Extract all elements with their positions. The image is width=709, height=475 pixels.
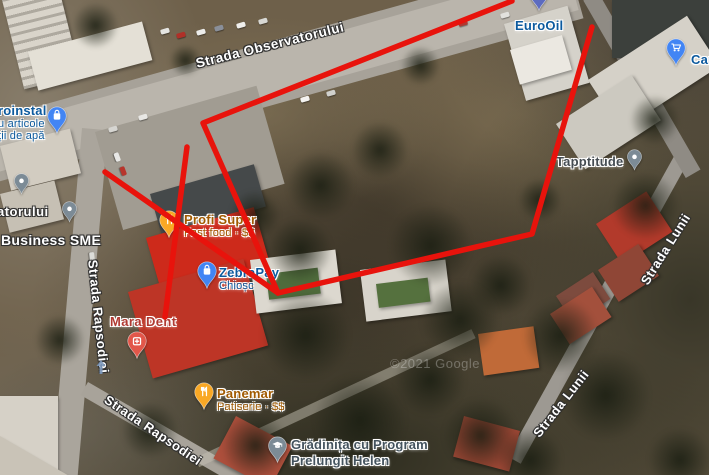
dot-icon (67, 207, 72, 212)
vehicle (160, 28, 170, 35)
profi-super-subtitle: Fast food · $$ (184, 227, 256, 239)
one-way-arrow-icon (96, 360, 106, 374)
vehicle (326, 90, 336, 97)
dot-icon (632, 155, 637, 160)
tree-canopy (380, 330, 480, 430)
tree-canopy (510, 170, 570, 230)
building (478, 326, 539, 375)
tree-canopy (273, 138, 368, 233)
vehicle (196, 29, 206, 36)
zebrapay-subtitle: Chioșc (219, 280, 279, 292)
mara-dent-label[interactable]: Mara Dent (110, 314, 176, 329)
pin-carrefour[interactable] (665, 38, 687, 68)
tree-canopy (340, 110, 420, 190)
profi-super-label[interactable]: Profi Super Fast food · $$ (184, 212, 256, 239)
building (453, 416, 520, 472)
gradinita-label[interactable]: Grădinița cu Program Prelungit Helen (291, 437, 428, 469)
euroil-label[interactable]: EuroOil (515, 18, 563, 33)
street-label-observatorului-partial: atorului (0, 204, 49, 219)
pin-hidroinstal[interactable] (46, 106, 68, 136)
vehicle (214, 25, 224, 32)
pin-gradinita[interactable] (267, 436, 288, 465)
tree-canopy (635, 415, 709, 475)
zebrapay-name: ZebraPay (219, 265, 279, 280)
hidroinstal-label-line3: ții de apă (0, 130, 47, 142)
map-canvas[interactable]: Strada Observatorului Strada Rapsodiei S… (0, 0, 709, 475)
panemar-label[interactable]: Panemar Patiserie · $$ (217, 386, 285, 413)
tapptitude-label[interactable]: Tapptitude (556, 154, 623, 169)
watermark: ©2021 Google (390, 356, 480, 371)
pin-unnamed-gray[interactable] (13, 173, 30, 196)
carrefour-label-truncated[interactable]: Car (691, 52, 709, 67)
profi-super-name: Profi Super (184, 212, 256, 227)
vehicle (176, 32, 186, 39)
vehicle (300, 96, 310, 103)
pin-mara-dent[interactable] (126, 331, 148, 361)
vehicle (258, 18, 268, 25)
hidroinstal-label-line1: roinstal (0, 103, 47, 118)
vehicle (236, 22, 246, 29)
pin-profi-super[interactable] (158, 210, 180, 240)
pin-zebrapay[interactable] (196, 261, 218, 291)
gradinita-name-line1: Grădinița cu Program (291, 437, 428, 453)
pin-panemar[interactable] (193, 382, 215, 412)
hidroinstal-label-line2: u articole (0, 118, 47, 130)
zebrapay-label[interactable]: ZebraPay Chioșc (219, 265, 279, 292)
panemar-subtitle: Patiserie · $$ (217, 401, 285, 413)
pin-tapptitude[interactable] (626, 149, 643, 172)
business-sme-label[interactable]: Business SME (1, 232, 101, 248)
pin-business-sme[interactable] (61, 201, 78, 224)
tree-canopy (458, 243, 543, 328)
pin-euroil[interactable] (529, 0, 549, 13)
dot-icon (19, 179, 24, 184)
hidroinstal-label[interactable]: roinstal u articole ții de apă (0, 103, 47, 142)
panemar-name: Panemar (217, 386, 285, 401)
street-label-rapsodiei-diagonal: Strada Rapsodiei (102, 392, 205, 468)
gradinita-name-line2: Prelungit Helen (291, 453, 428, 469)
